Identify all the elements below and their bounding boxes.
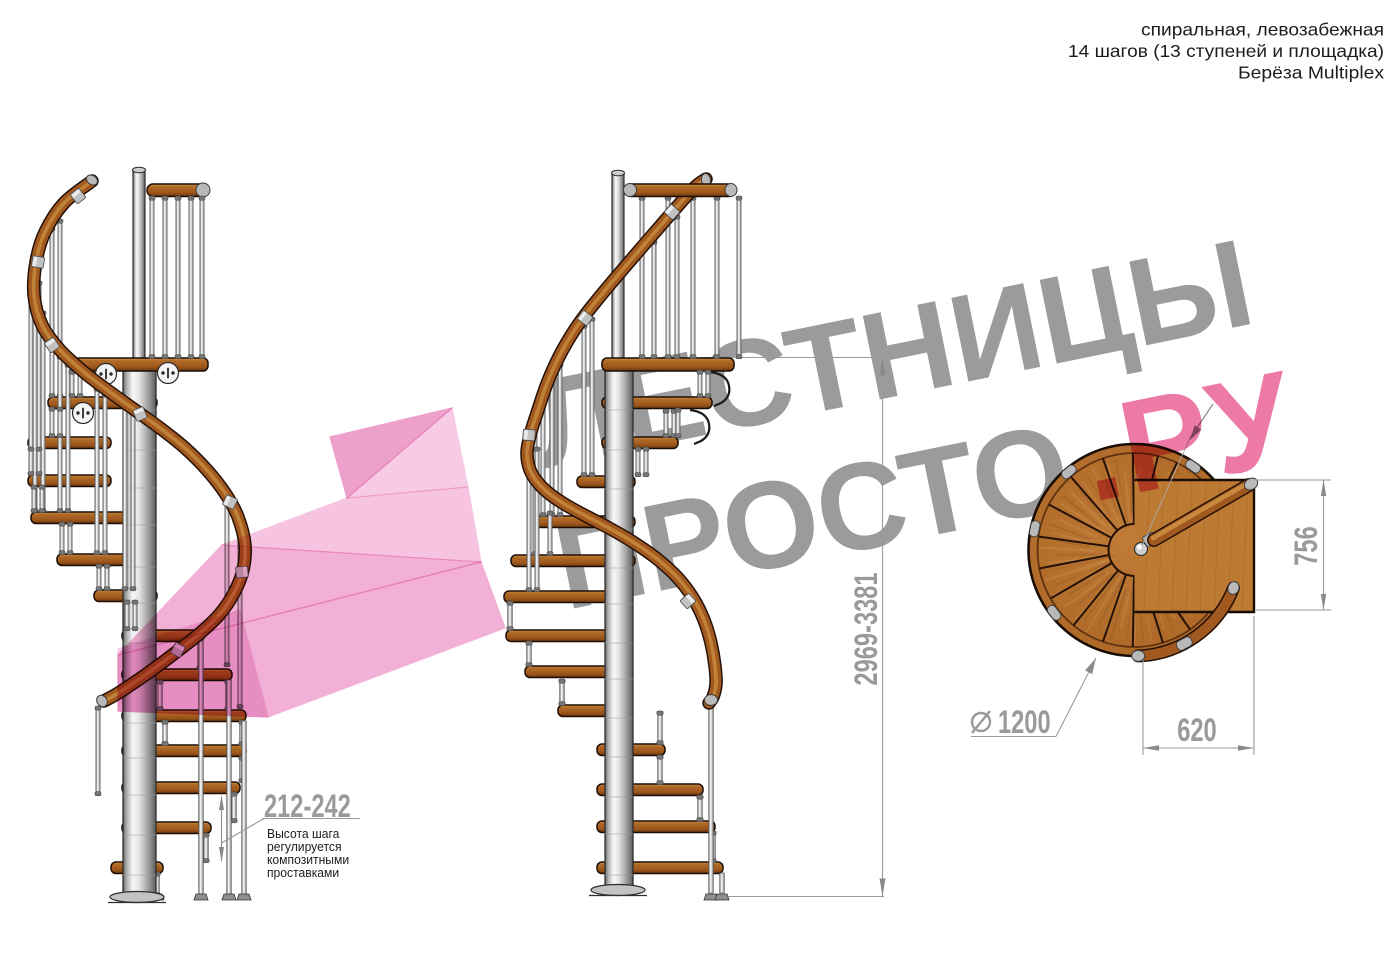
svg-text:756: 756	[1289, 526, 1324, 565]
svg-text:проставками: проставками	[267, 866, 339, 881]
svg-text:2969-3381: 2969-3381	[849, 572, 884, 685]
svg-text:Берёза Multiplex: Берёза Multiplex	[1238, 63, 1384, 83]
svg-text:14 шагов (13 ступеней и площад: 14 шагов (13 ступеней и площадка)	[1068, 41, 1384, 61]
svg-text:спиральная, левозабежная: спиральная, левозабежная	[1141, 20, 1384, 40]
svg-text:1200: 1200	[998, 705, 1051, 740]
svg-text:212-242: 212-242	[264, 789, 351, 824]
svg-text:620: 620	[1177, 713, 1216, 748]
